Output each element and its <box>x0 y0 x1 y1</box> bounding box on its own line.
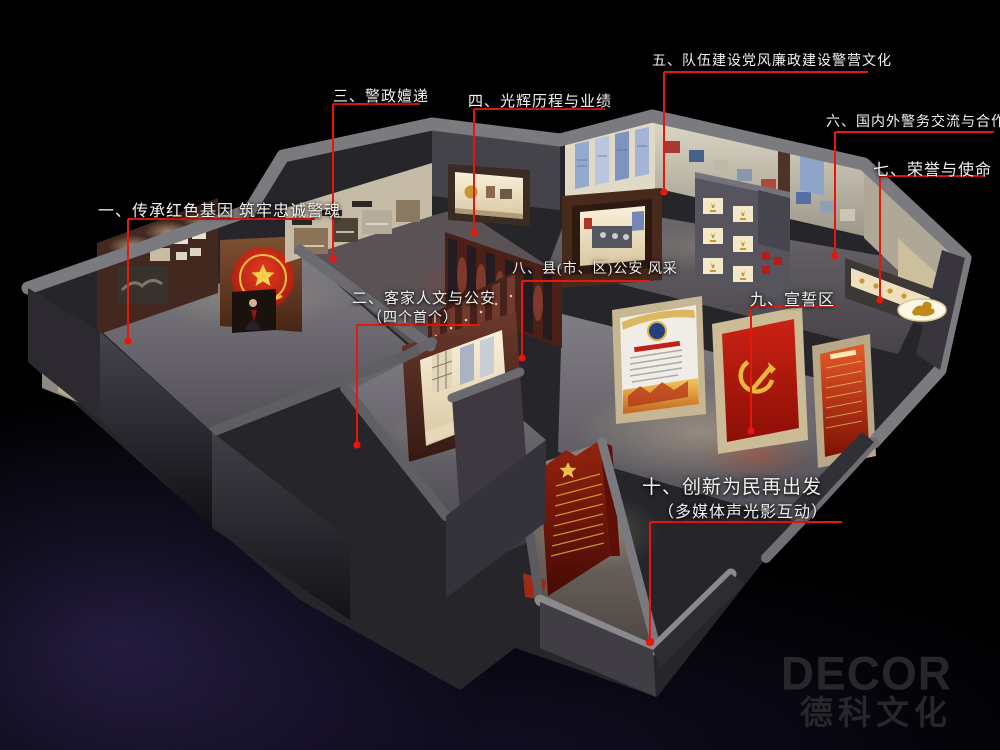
watermark-name: 德科文化 <box>781 694 952 732</box>
zone-label-9: 九、宣誓区 <box>750 286 835 310</box>
zone-label-8: 八、县(市、区)公安 风采 <box>512 258 678 278</box>
zone-label-3: 三、警政嬗递 <box>333 85 429 106</box>
watermark-logo: DECOR <box>781 652 952 695</box>
zone-label-2: 二、客家人文与公安 <box>352 287 496 308</box>
zone-label-10-sub: （多媒体声光影互动） <box>658 498 828 522</box>
zone-label-5: 五、队伍建设党风廉政建设警营文化 <box>652 50 892 70</box>
rooster-floor-emblem <box>898 299 946 321</box>
party-flag-wall <box>712 306 808 454</box>
zone-label-10: 十、创新为民再出发 <box>642 472 822 499</box>
zone-label-4: 四、光辉历程与业绩 <box>468 90 612 111</box>
watermark: DECOR 德科文化 <box>781 652 952 732</box>
zone-label-1: 一、传承红色基因 筑牢忠诚警魂 <box>98 197 341 221</box>
zone-label-6: 六、国内外警务交流与合作 <box>826 111 1000 131</box>
oath-poster <box>612 296 706 424</box>
zone-label-2-sub: （四个首个） <box>368 307 458 327</box>
exhibition-plan-screenshot: 一、传承红色基因 筑牢忠诚警魂 二、客家人文与公安 （四个首个） 三、警政嬗递 … <box>0 0 1000 750</box>
zone-label-7: 七、荣誉与使命 <box>873 156 992 180</box>
